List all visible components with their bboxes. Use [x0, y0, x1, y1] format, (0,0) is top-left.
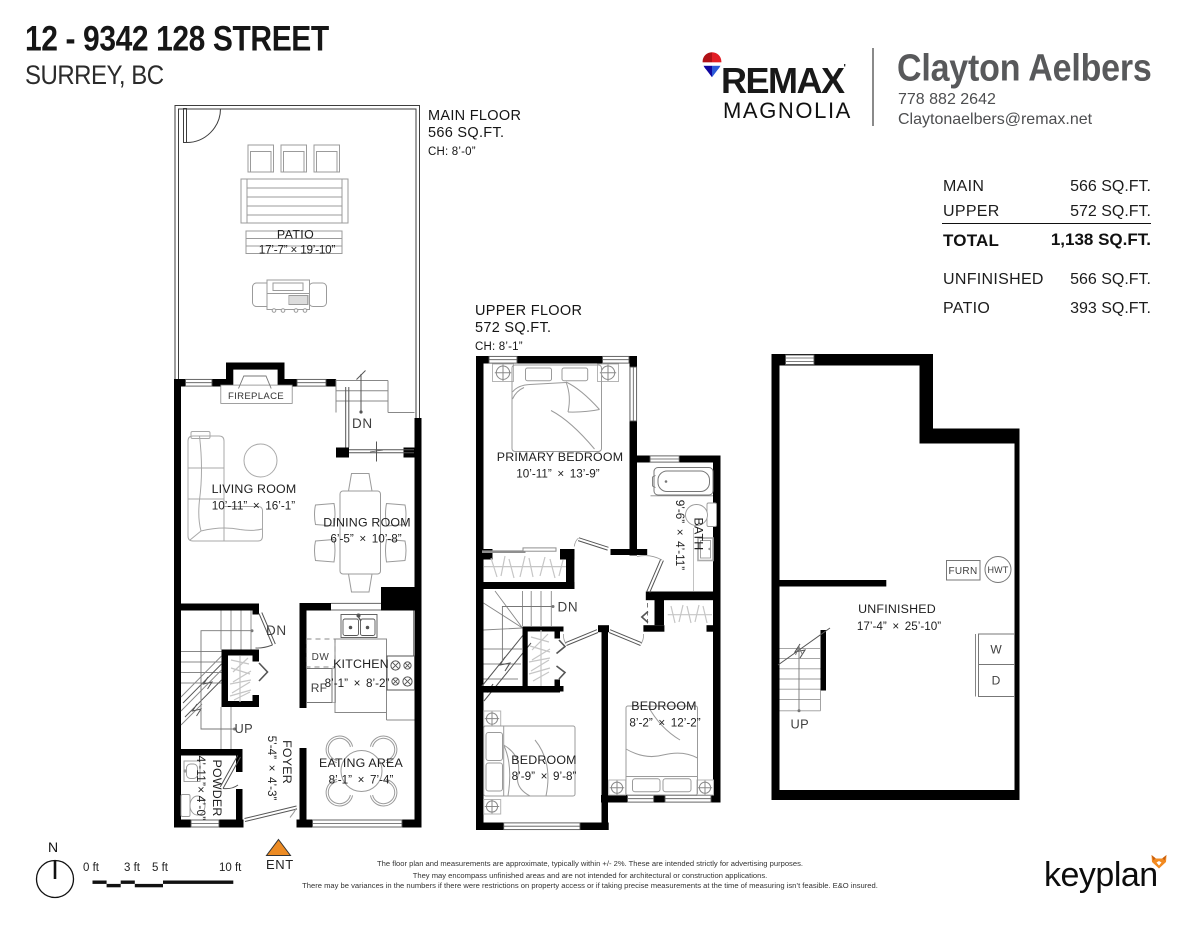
svg-text:17’-7” × 19’-10”: 17’-7” × 19’-10” [259, 244, 336, 257]
svg-text:DINING ROOM: DINING ROOM [323, 516, 411, 530]
svg-text:4’-11”× 4’-0”: 4’-11”× 4’-0” [194, 756, 208, 821]
svg-text:BEDROOM: BEDROOM [631, 699, 696, 713]
svg-text:UP: UP [791, 717, 810, 732]
svg-text:POWDER: POWDER [210, 760, 224, 817]
svg-text:FIREPLACE: FIREPLACE [228, 391, 284, 402]
svg-text:DN: DN [352, 416, 373, 431]
svg-text:FURN: FURN [949, 566, 978, 577]
svg-text:LIVING ROOM: LIVING ROOM [212, 482, 297, 496]
svg-text:DN: DN [558, 600, 579, 615]
svg-text:10’-11” × 13’-9”: 10’-11” × 13’-9” [516, 468, 600, 481]
svg-text:W: W [990, 643, 1002, 657]
svg-text:DN: DN [266, 623, 287, 638]
svg-text:BEDROOM: BEDROOM [511, 753, 576, 767]
svg-text:D: D [992, 674, 1001, 688]
svg-text:DW: DW [312, 652, 330, 663]
svg-text:9’-6” × 4’-11”: 9’-6” × 4’-11” [673, 500, 686, 571]
svg-text:6’-5” × 10’-8”: 6’-5” × 10’-8” [330, 533, 401, 546]
svg-text:10’-11” × 16’-1”: 10’-11” × 16’-1” [212, 500, 296, 513]
svg-text:5’-4” × 4’-3”: 5’-4” × 4’-3” [265, 736, 278, 801]
svg-text:8’-9” × 9’-8”: 8’-9” × 9’-8” [512, 770, 577, 783]
svg-text:PRIMARY BEDROOM: PRIMARY BEDROOM [497, 450, 623, 464]
svg-text:N: N [48, 839, 58, 855]
svg-text:8’-1” × 8’-2”: 8’-1” × 8’-2” [325, 677, 390, 690]
svg-text:HWT: HWT [987, 565, 1008, 575]
svg-text:UNFINISHED: UNFINISHED [858, 602, 936, 616]
svg-text:PATIO: PATIO [277, 228, 314, 242]
svg-text:UP: UP [235, 721, 254, 736]
svg-text:17’-4” × 25’-10”: 17’-4” × 25’-10” [857, 620, 941, 633]
svg-text:EATING AREA: EATING AREA [319, 756, 403, 770]
svg-text:KITCHEN: KITCHEN [333, 657, 389, 671]
svg-text:BATH: BATH [692, 518, 706, 551]
svg-text:8’-2” × 12’-2”: 8’-2” × 12’-2” [629, 717, 700, 730]
svg-text:8’-1” × 7’-4”: 8’-1” × 7’-4” [329, 774, 394, 787]
svg-text:FOYER: FOYER [280, 740, 294, 784]
